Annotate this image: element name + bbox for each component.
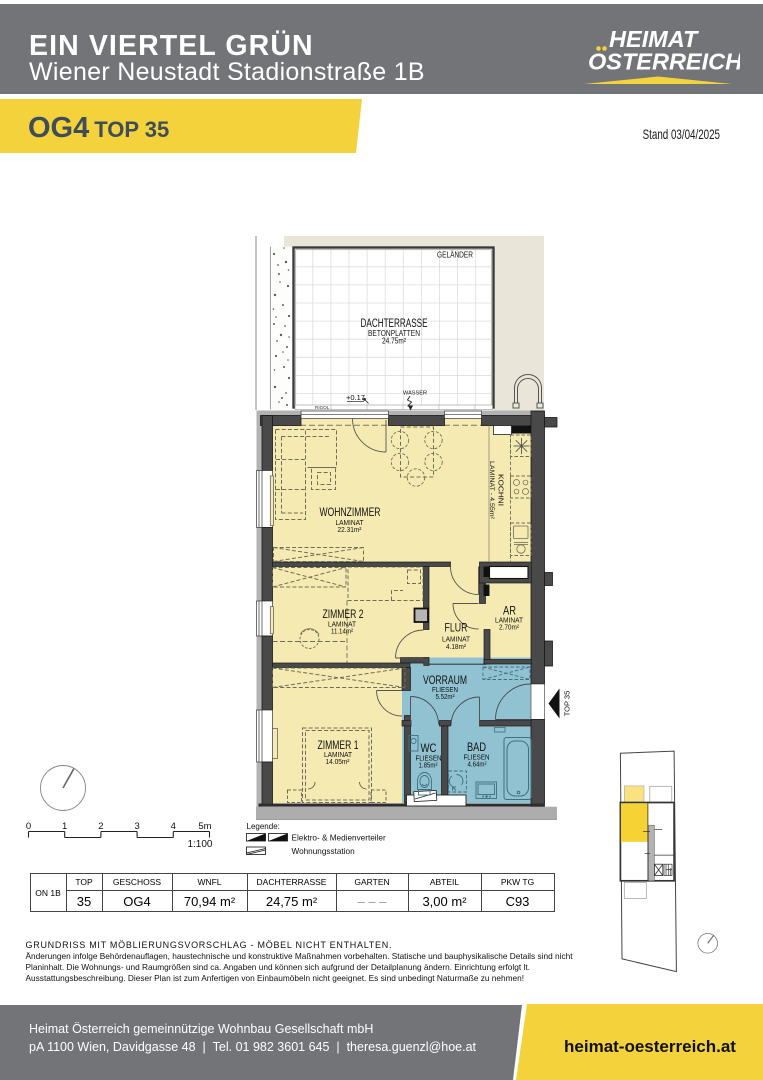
svg-text:2.70m²: 2.70m² xyxy=(499,623,519,632)
svg-text:LAMINAT - 4.55m²: LAMINAT - 4.55m² xyxy=(488,461,495,520)
svg-text:11.14m²: 11.14m² xyxy=(331,627,353,636)
svg-text:1.85m²: 1.85m² xyxy=(419,760,438,769)
svg-text:4.64m²: 4.64m² xyxy=(468,759,487,768)
svg-text:FLUR: FLUR xyxy=(445,622,468,635)
svg-text:GELÄNDER: GELÄNDER xyxy=(437,251,473,260)
svg-text:Elektro- & Medienverteiler: Elektro- & Medienverteiler xyxy=(292,834,386,843)
svg-text:KOCHNI: KOCHNI xyxy=(497,474,506,506)
svg-text:2: 2 xyxy=(98,821,103,832)
svg-text:RIGOL: RIGOL xyxy=(315,405,330,410)
svg-text:24.75m²: 24.75m² xyxy=(382,337,406,346)
svg-text:3: 3 xyxy=(134,821,139,832)
svg-text:1: 1 xyxy=(62,821,67,832)
svg-text:Legende:: Legende: xyxy=(247,822,280,831)
svg-text:Wohnungsstation: Wohnungsstation xyxy=(292,847,356,856)
svg-text:22.31m²: 22.31m² xyxy=(338,525,362,534)
svg-text:1:100: 1:100 xyxy=(187,839,212,850)
svg-text:0: 0 xyxy=(26,821,31,832)
svg-text:4.18m²: 4.18m² xyxy=(446,642,466,651)
svg-text:+0.17: +0.17 xyxy=(346,393,365,402)
svg-text:WASSER: WASSER xyxy=(403,391,427,397)
svg-text:5m: 5m xyxy=(198,821,211,832)
svg-text:14.05m²: 14.05m² xyxy=(326,757,350,766)
svg-text:TOP 35: TOP 35 xyxy=(563,691,572,717)
svg-text:5.52m²: 5.52m² xyxy=(436,692,455,701)
svg-text:4: 4 xyxy=(171,821,176,832)
